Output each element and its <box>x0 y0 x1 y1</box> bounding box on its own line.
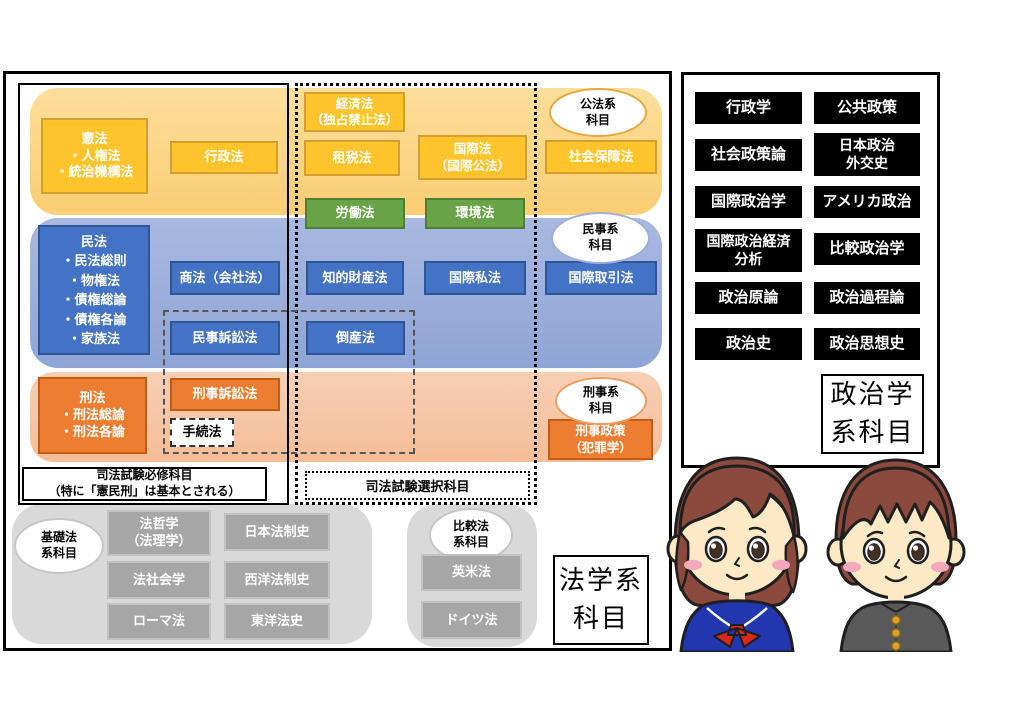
boy-blush-right <box>931 562 949 572</box>
box-tousanhou: 倒産法 <box>306 321 405 355</box>
label-bar-exam-elective: 司法試験選択科目 <box>305 471 530 500</box>
box-romahou: ローマ法 <box>107 603 211 640</box>
box-seijishisoushi: 政治思想史 <box>814 328 920 360</box>
box-minpou: 民法 ・民法総則 ・物権法 ・債権総論 ・債権各論 ・家族法 <box>38 225 150 355</box>
tag-basic-law: 基礎法 系科目 <box>14 518 104 574</box>
tag-civil-law: 民事系 科目 <box>551 212 650 264</box>
box-kokusaitorihikihou: 国際取引法 <box>545 261 657 295</box>
box-tetsuzukihou: 手続法 <box>170 418 234 447</box>
box-kokusaiseijigaku: 国際政治学 <box>695 186 802 218</box>
box-kokusaiseijikeizaibunseki: 国際政治経済 分析 <box>695 229 802 272</box>
box-keijiseisaku: 刑事政策 （犯罪学） <box>548 419 653 460</box>
box-gyouseigaku: 行政学 <box>695 92 802 124</box>
boy-button-3 <box>892 642 900 650</box>
box-roudouhou: 労働法 <box>305 198 405 229</box>
box-keijisoshouhou: 刑事訴訟法 <box>170 378 280 411</box>
box-shakaiseisakuron: 社会政策論 <box>695 139 802 171</box>
politics-panel-title: 政治学 系科目 <box>821 374 924 454</box>
box-gyouseihou: 行政法 <box>170 141 278 174</box>
law-panel-title: 法学系 科目 <box>553 555 649 645</box>
label-bar-exam-required: 司法試験必修科目 （特に「憲民刑」は基本とされる） <box>22 467 267 501</box>
boy-button-1 <box>892 616 900 624</box>
box-eibeihou: 英米法 <box>421 554 522 591</box>
box-americaseiji: アメリカ政治 <box>814 186 920 218</box>
box-seijishi: 政治史 <box>695 328 802 360</box>
box-seijigenron: 政治原論 <box>695 282 802 314</box>
box-minjisoshouhou: 民事訴訟法 <box>170 321 280 355</box>
box-keizaihou: 経済法 （独占禁止法） <box>304 92 405 132</box>
box-keihou: 刑法 ・刑法総論 ・刑法各論 <box>38 377 147 454</box>
box-kokusaihou: 国際法 （国際公法） <box>418 135 527 180</box>
box-chitekizaisanhou: 知的財産法 <box>306 261 404 295</box>
box-nihonseijigaikoushi: 日本政治 外交史 <box>814 133 920 176</box>
box-nihonhouseishi: 日本法制史 <box>224 513 330 551</box>
boy-student-illustration <box>816 452 976 652</box>
box-kenpou: 憲法 ・人権法 ・統治機構法 <box>41 118 148 194</box>
box-kokusaishihou: 国際私法 <box>424 261 526 295</box>
box-shouhou: 商法（会社法） <box>170 261 280 295</box>
box-koukyouseisaku: 公共政策 <box>814 92 920 124</box>
girl-student-illustration <box>658 452 816 652</box>
box-doitsuhou: ドイツ法 <box>421 601 522 639</box>
box-seiyouhouseishi: 西洋法制史 <box>224 561 330 599</box>
box-shakaihoshouhou: 社会保障法 <box>545 140 657 174</box>
box-seijikateiron: 政治過程論 <box>814 282 920 314</box>
law-politics-subjects-diagram: 憲法 ・人権法 ・統治機構法 行政法 経済法 （独占禁止法） 租税法 国際法 （… <box>0 0 1024 724</box>
tag-public-law: 公法系 科目 <box>549 88 647 137</box>
tag-criminal-law: 刑事系 科目 <box>555 377 647 425</box>
box-hikakuseijigaku: 比較政治学 <box>814 233 920 265</box>
box-sozeihou: 租税法 <box>304 140 400 176</box>
boy-blush-left <box>843 562 861 572</box>
box-kankyouhou: 環境法 <box>425 198 525 229</box>
box-touyouhoushi: 東洋法史 <box>224 603 330 640</box>
girl-blush-right <box>772 560 790 570</box>
box-houtetsugaku: 法哲学 （法理学） <box>107 510 211 556</box>
box-houshakaigaku: 法社会学 <box>107 561 211 599</box>
boy-button-2 <box>892 629 900 637</box>
girl-blush-left <box>684 560 702 570</box>
